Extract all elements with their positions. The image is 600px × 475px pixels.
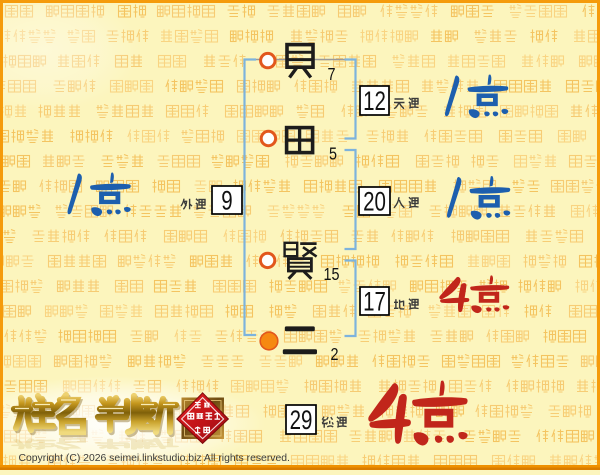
svg-text:9: 9	[221, 186, 232, 216]
svg-text:29: 29	[290, 405, 313, 435]
svg-text:Copyright (C) 2026 seimei.link: Copyright (C) 2026 seimei.linkstudio.biz…	[19, 453, 290, 464]
svg-text:17: 17	[363, 287, 386, 317]
svg-text:20: 20	[363, 187, 386, 217]
svg-text:5: 5	[329, 144, 337, 164]
svg-text:12: 12	[363, 86, 386, 116]
svg-text:2: 2	[330, 345, 338, 365]
svg-text:15: 15	[323, 265, 339, 285]
svg-text:7: 7	[327, 65, 335, 85]
